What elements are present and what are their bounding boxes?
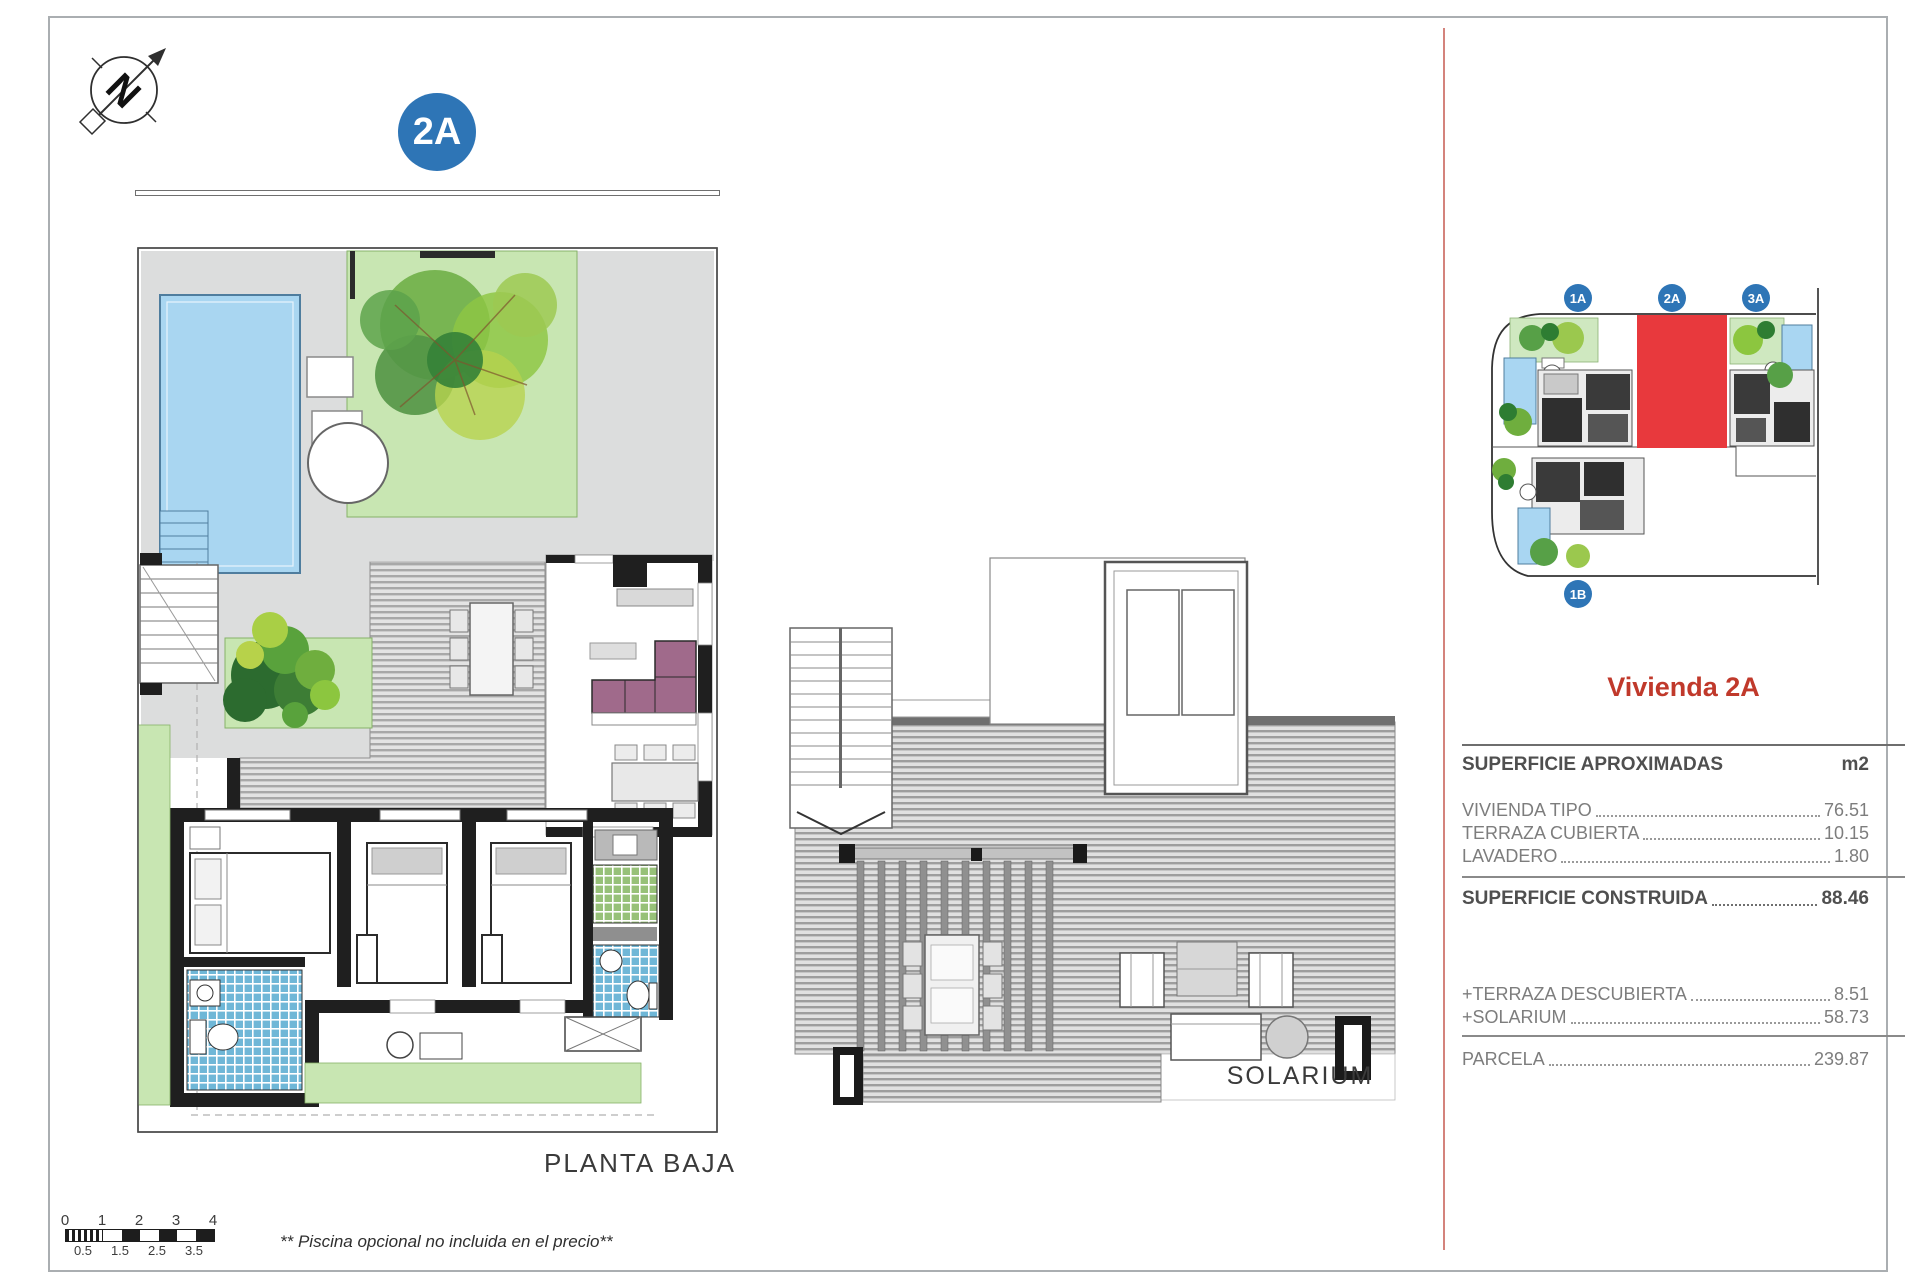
table-header-unit: m2 (1842, 754, 1905, 776)
lot-3a-house (1730, 318, 1814, 446)
dotted-leader (1712, 904, 1817, 906)
total-value: 88.46 (1821, 888, 1905, 910)
row-label: +TERRAZA DESCUBIERTA (1462, 984, 1687, 1005)
scale-bar-segments (65, 1229, 215, 1242)
scale-tick-label: 3.5 (182, 1243, 206, 1258)
scale-tick-label: 1 (90, 1212, 114, 1229)
dotted-leader (1549, 1064, 1810, 1066)
row-value: 76.51 (1824, 800, 1905, 821)
scale-segment (103, 1230, 122, 1241)
table-parcela-row: PARCELA 239.87 (1462, 1049, 1905, 1070)
table-header: SUPERFICIE APROXIMADAS m2 (1462, 754, 1905, 776)
dotted-leader (1643, 838, 1820, 840)
row-value: 58.73 (1824, 1007, 1905, 1028)
sideboard (617, 589, 693, 606)
total-label: SUPERFICIE CONSTRUIDA (1462, 888, 1708, 910)
dotted-leader (1691, 999, 1830, 1001)
solarium-label: SOLARIUM (1190, 1062, 1410, 1091)
solarium-plan (775, 550, 1425, 1110)
table-row: TERRAZA CUBIERTA 10.15 (1462, 823, 1905, 844)
badge-3a-label: 3A (1748, 291, 1765, 306)
table-rule-bottom (1462, 1035, 1905, 1037)
scale-tick-label: 3 (164, 1212, 188, 1229)
panel-title: Vivienda 2A (1462, 672, 1905, 703)
dotted-leader (1571, 1022, 1820, 1024)
parcela-label: PARCELA (1462, 1049, 1545, 1070)
title-rule (135, 190, 720, 196)
exterior-stairs (140, 553, 218, 695)
scale-tick-label: 0.5 (71, 1243, 95, 1258)
scale-segment (177, 1230, 196, 1241)
scale-tick-label: 4 (201, 1212, 225, 1229)
ground-floor-plan (135, 245, 720, 1135)
scale-segment (140, 1230, 159, 1241)
row-value: 1.80 (1834, 846, 1905, 867)
row-value: 8.51 (1834, 984, 1905, 1005)
bathroom-1 (187, 970, 302, 1090)
table-header-label: SUPERFICIE APROXIMADAS (1462, 754, 1723, 776)
row-label: VIVIENDA TIPO (1462, 800, 1592, 821)
table-rule-top (1462, 744, 1905, 746)
scale-segment (66, 1230, 103, 1241)
solarium-stairs (790, 628, 892, 834)
solarium-dining-set (903, 935, 1002, 1035)
parcela-value: 239.87 (1814, 1049, 1905, 1070)
scale-tick-label: 0 (53, 1212, 77, 1229)
site-plan: 1A 2A 3A 1B (1480, 270, 1900, 620)
bed-single-1 (357, 843, 447, 983)
scale-segment (122, 1230, 141, 1241)
lot-2a-highlight (1637, 315, 1727, 448)
table-rule-mid (1462, 876, 1905, 878)
row-label: +SOLARIUM (1462, 1007, 1567, 1028)
row-value: 10.15 (1824, 823, 1905, 844)
scale-tick-label: 1.5 (108, 1243, 132, 1258)
dotted-leader (1561, 861, 1830, 863)
table-row: LAVADERO 1.80 (1462, 846, 1905, 867)
north-compass-icon: N (72, 38, 177, 143)
bed-single-2 (482, 843, 571, 983)
table-row: VIVIENDA TIPO 76.51 (1462, 800, 1905, 821)
panel-separator-line (1443, 28, 1445, 1250)
laundry-and-bathroom-2 (593, 830, 659, 1017)
scale-tick-label: 2 (127, 1212, 151, 1229)
table-total-row: SUPERFICIE CONSTRUIDA 88.46 (1462, 888, 1905, 910)
scale-segment (196, 1230, 215, 1241)
table-row: +TERRAZA DESCUBIERTA 8.51 (1462, 984, 1905, 1005)
indoor-dining-set (612, 745, 698, 818)
badge-1a-label: 1A (1570, 291, 1587, 306)
row-label: LAVADERO (1462, 846, 1557, 867)
scale-tick-label: 2.5 (145, 1243, 169, 1258)
scale-segment (159, 1230, 178, 1241)
unit-badge: 2A (398, 93, 476, 171)
table-row: +SOLARIUM 58.73 (1462, 1007, 1905, 1028)
badge-1b-label: 1B (1570, 587, 1587, 602)
unit-badge-label: 2A (413, 111, 462, 154)
dotted-leader (1596, 815, 1820, 817)
pool-disclaimer: ** Piscina opcional no incluida en el pr… (280, 1232, 613, 1252)
badge-2a-label: 2A (1664, 291, 1681, 306)
planta-baja-label: PLANTA BAJA (480, 1148, 800, 1179)
outdoor-dining-set (450, 603, 533, 695)
pool (160, 295, 300, 573)
row-label: TERRAZA CUBIERTA (1462, 823, 1639, 844)
floorplan-sheet: { "page": { "badge": "2A", "plan_label":… (0, 0, 1920, 1280)
